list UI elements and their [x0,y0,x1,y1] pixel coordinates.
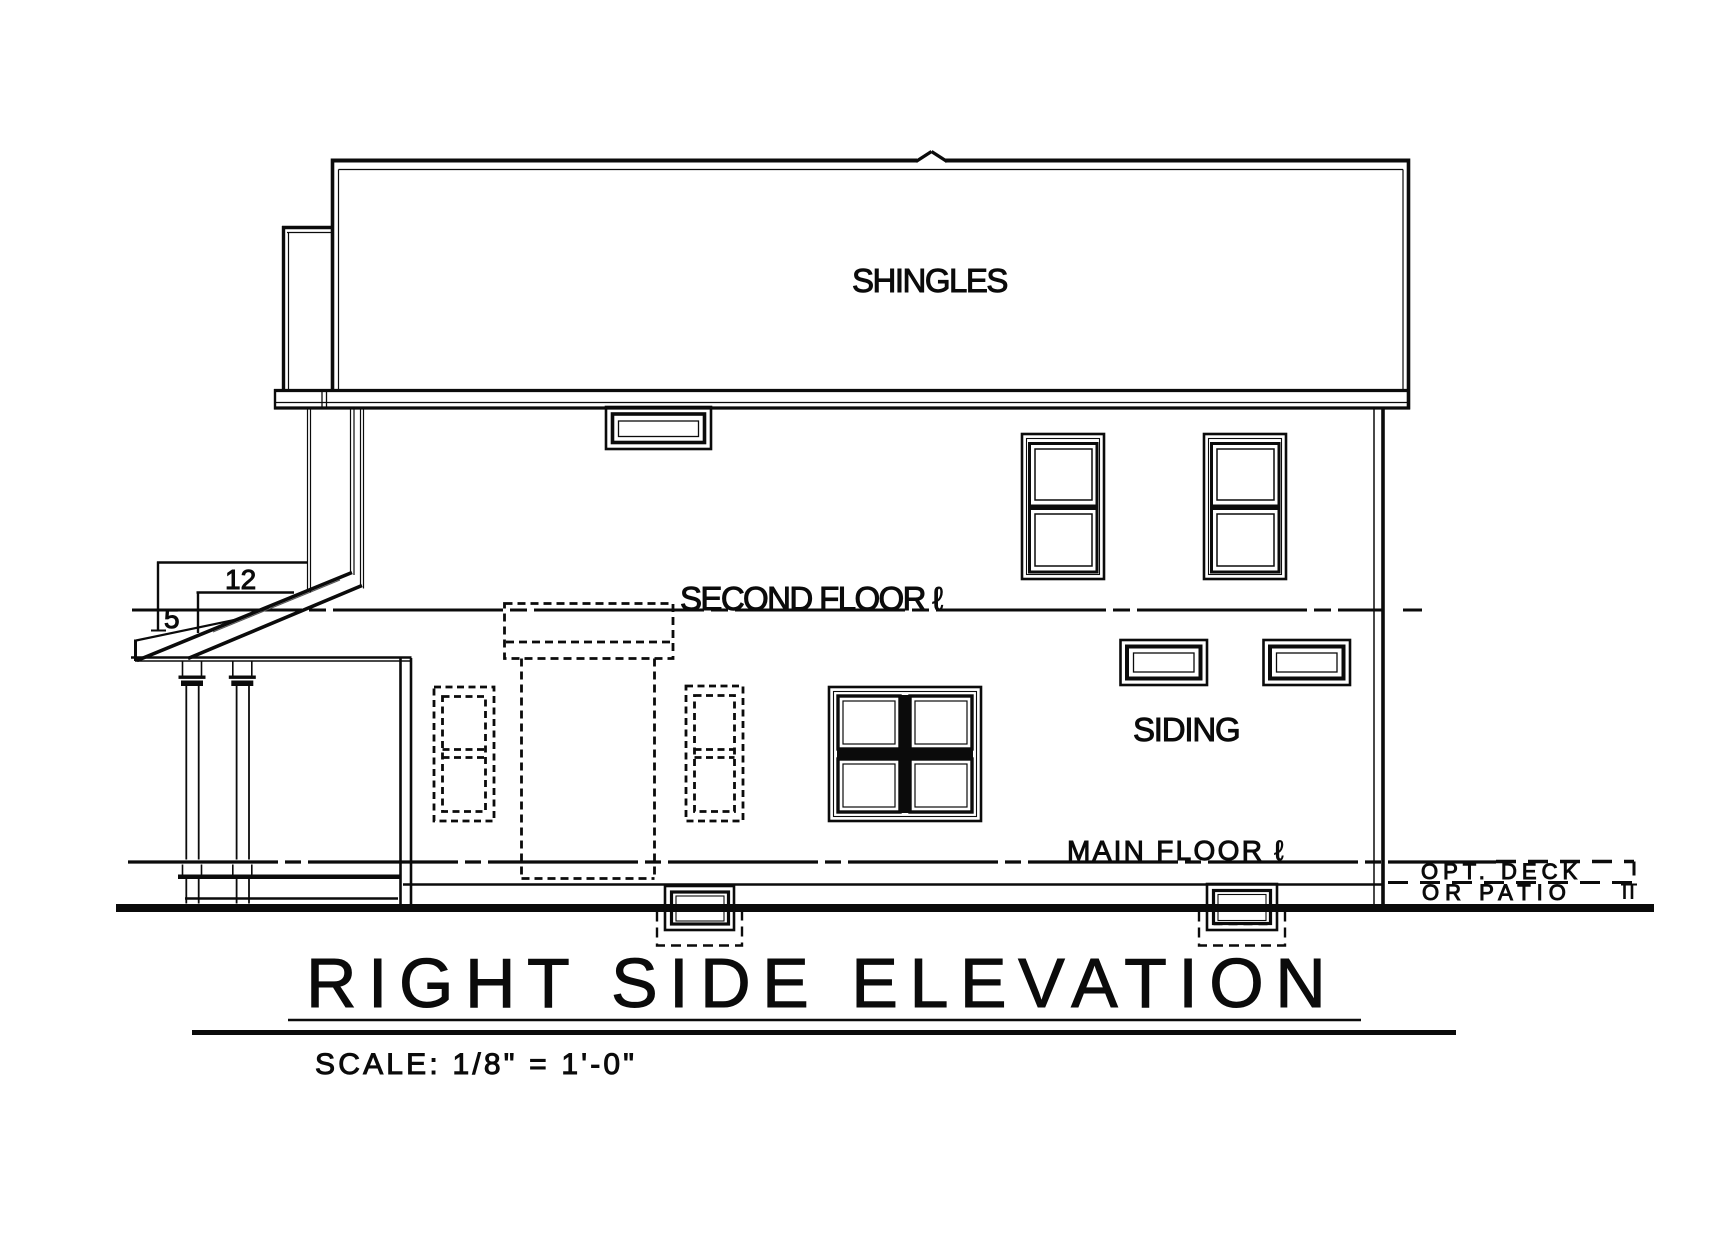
svg-text:SECOND FLOOR ℓ: SECOND FLOOR ℓ [680,580,943,617]
svg-text:OR PATIO: OR PATIO [1422,880,1572,905]
svg-text:5: 5 [164,603,180,634]
svg-text:SCALE: 1/8" = 1'-0": SCALE: 1/8" = 1'-0" [315,1048,637,1081]
svg-text:RIGHT SIDE ELEVATION: RIGHT SIDE ELEVATION [306,944,1337,1022]
svg-text:SHINGLES: SHINGLES [852,262,1007,299]
svg-text:SIDING: SIDING [1133,711,1239,748]
svg-text:12: 12 [225,564,256,595]
